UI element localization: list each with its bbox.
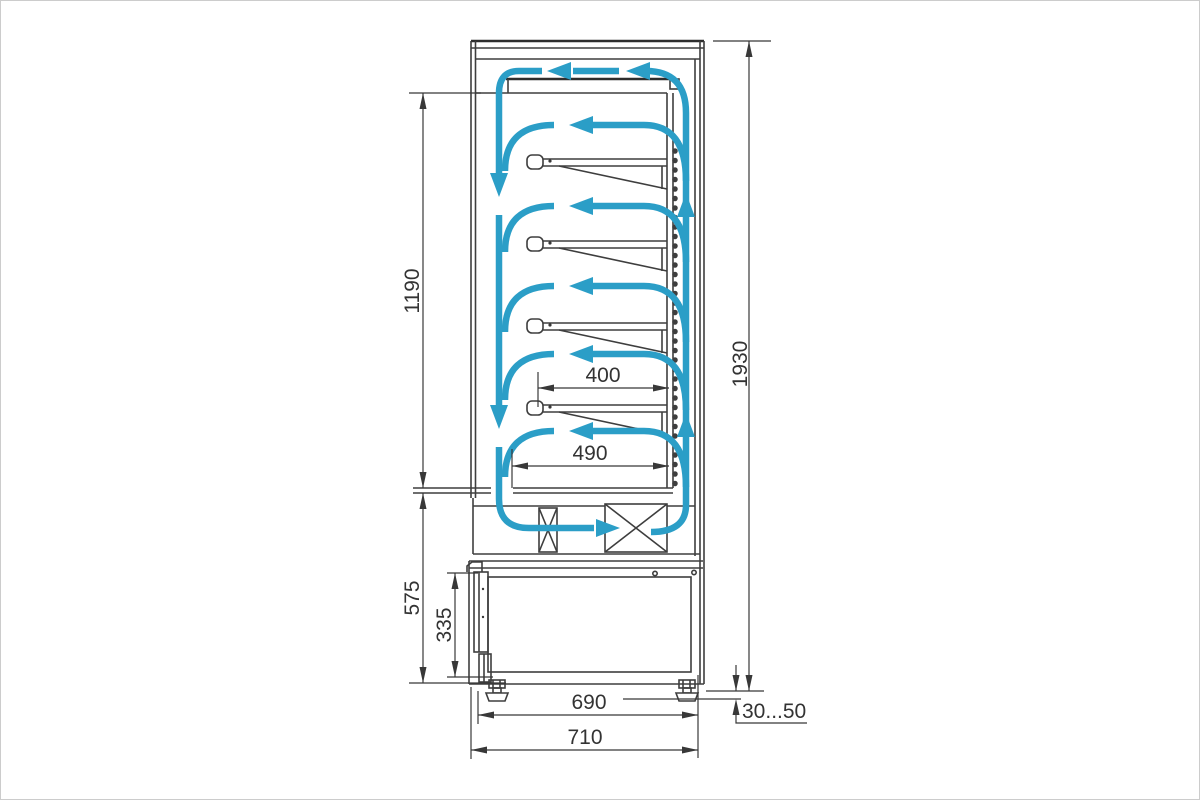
screw-icon xyxy=(653,571,657,575)
airflow-arrow-up-icon xyxy=(677,193,695,217)
service-door xyxy=(488,577,691,672)
dimension-label: 335 xyxy=(433,607,456,642)
airflow-arrow-left-icon xyxy=(569,422,593,440)
dimension-1190: 1190 xyxy=(401,93,481,488)
shelf-bracket xyxy=(559,248,667,271)
air-deck xyxy=(413,488,700,554)
airflow-arrow-right-icon xyxy=(596,519,620,537)
airflow-bay1-feed xyxy=(592,125,686,181)
dimension-label: 30...50 xyxy=(742,700,806,723)
shelves xyxy=(527,155,667,435)
dimension-690: 690 xyxy=(478,691,698,724)
airflow-arrow-left-icon xyxy=(626,62,650,80)
shelf-1 xyxy=(527,155,667,189)
cabinet-side-section-drawing: 1190 1930 575 335 400 490 xyxy=(1,1,1200,800)
shelf-3 xyxy=(527,319,667,353)
shelf-ticket-strip xyxy=(527,237,543,251)
airflow-arrow-up-icon xyxy=(677,413,695,437)
adjustable-foot-right xyxy=(676,680,698,701)
airflow-bay4-bend xyxy=(505,354,554,400)
technical-drawing-canvas: 1190 1930 575 335 400 490 xyxy=(0,0,1200,800)
dimension-490: 490 xyxy=(512,442,669,488)
shelf-bracket xyxy=(559,330,667,353)
canopy xyxy=(471,41,704,93)
dimension-label: 400 xyxy=(585,364,620,387)
base-cabinet xyxy=(467,561,704,701)
airflow-arrow-down-icon xyxy=(490,405,508,429)
airflow-arrow-left-icon xyxy=(569,345,593,363)
dimension-label: 690 xyxy=(571,691,606,714)
shelf-ticket-strip xyxy=(527,155,543,169)
airflow-arrow-left-icon xyxy=(569,277,593,295)
dimension-1930: 1930 xyxy=(713,41,771,691)
airflow-arrow-left-icon xyxy=(547,62,571,80)
dimension-30-50: 30...50 xyxy=(623,665,807,723)
dimension-400: 400 xyxy=(538,364,669,407)
airflow-arrow-down-icon xyxy=(490,173,508,197)
shelf-ticket-strip xyxy=(527,319,543,333)
airflow-arrow-left-icon xyxy=(569,116,593,134)
dimension-label: 575 xyxy=(401,580,424,615)
front-glass xyxy=(471,41,476,498)
dimension-label: 1930 xyxy=(729,341,752,388)
dimension-label: 710 xyxy=(567,726,602,749)
airflow-arrow-left-icon xyxy=(569,197,593,215)
shelf-2 xyxy=(527,237,667,271)
shelf-bracket xyxy=(559,166,667,189)
shelf-ticket-strip xyxy=(527,401,543,415)
airflow-bay3-feed xyxy=(592,286,686,342)
dimension-label: 490 xyxy=(572,442,607,465)
airflow-bay2-feed xyxy=(592,206,686,262)
dimension-label: 1190 xyxy=(401,268,424,313)
screw-icon xyxy=(692,570,696,574)
